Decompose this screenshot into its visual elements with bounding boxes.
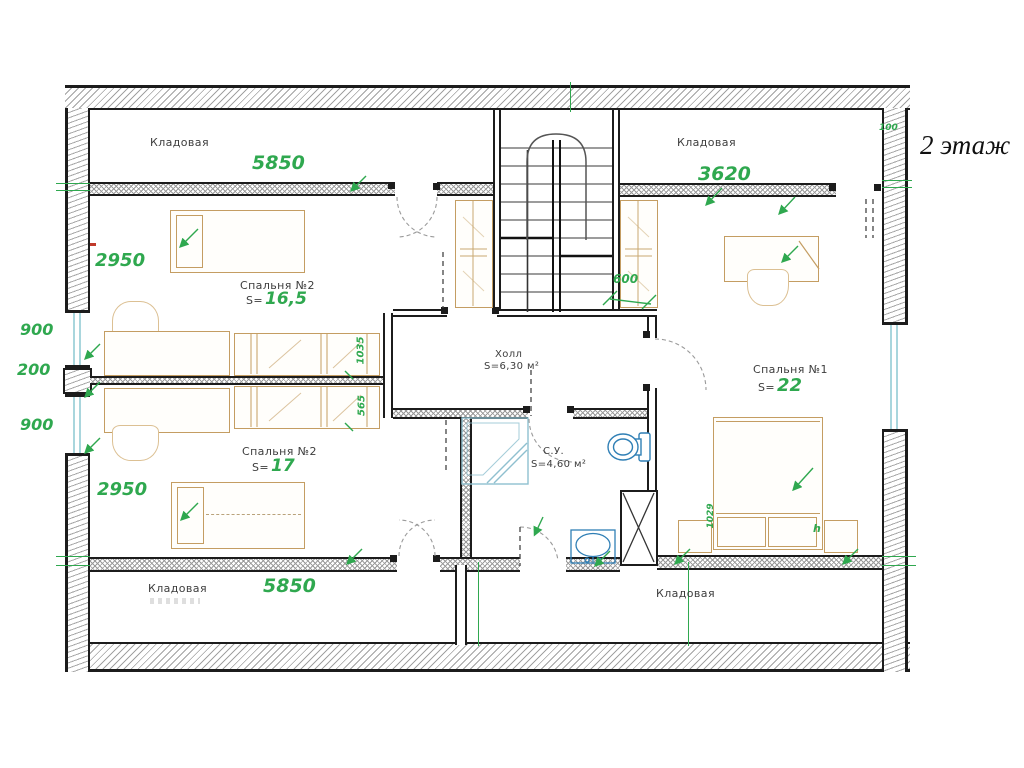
dim-565: 565: [357, 386, 368, 426]
room-label-bathroom: С.У.: [543, 446, 564, 457]
axis-mark-green: [56, 556, 90, 566]
chair: [747, 269, 789, 306]
hall-wall-right-b: [647, 388, 657, 418]
centerline-tick: [570, 82, 571, 112]
wardrobe-linework: [621, 201, 656, 306]
wall-bottom-d: [657, 555, 882, 570]
window-right: [882, 322, 908, 432]
wardrobe-stair-right: [620, 200, 658, 308]
room-area-bedroom2-bottom: S= 17: [252, 456, 295, 476]
door-jamb: [492, 307, 499, 314]
staircase: [501, 110, 612, 312]
dim-5850-top: 5850: [252, 152, 305, 174]
wall-desk-partition: [90, 376, 383, 385]
door-jamb: [441, 307, 448, 314]
wall-storage-divider: [455, 565, 467, 645]
wall-storage-top-right: [620, 183, 836, 197]
dim-h: h: [813, 522, 821, 535]
room-label-hall: Холл: [495, 349, 522, 360]
dim-2950-upper: 2950: [95, 250, 145, 271]
dim-100: 100: [879, 123, 898, 133]
room-label-storage-top-right: Кладовая: [677, 136, 736, 149]
window-left-lower: [65, 394, 90, 456]
dim-900-upper: 900: [20, 320, 53, 339]
door-jamb: [643, 384, 650, 391]
wardrobe-stair-left: [455, 200, 493, 308]
hall-wall-left: [383, 313, 393, 418]
window-left-upper: [65, 310, 90, 368]
axis-mark-red: [90, 243, 96, 246]
area-value: 22: [777, 375, 802, 396]
door-jamb: [829, 184, 836, 191]
desk-upper: [104, 331, 230, 376]
door-jamb: [433, 183, 440, 190]
room-label-storage-bottom-right: Кладовая: [656, 587, 715, 600]
area-prefix: S=: [252, 461, 269, 474]
axis-mark-green: [882, 180, 912, 188]
vent-shaft: [620, 490, 658, 566]
outer-wall-top: [65, 85, 910, 110]
stair-handrail: [527, 134, 586, 240]
dim-900-lower: 900: [20, 415, 53, 434]
door-jamb: [523, 406, 530, 413]
bed-footline: [716, 513, 820, 514]
door-jamb: [643, 331, 650, 338]
toilet: [605, 430, 653, 464]
bed-centerline: [206, 514, 301, 515]
dim-5850-bottom: 5850: [263, 575, 316, 597]
dim-200: 200: [17, 360, 50, 379]
axis-mark-green: [56, 183, 90, 191]
dim-3620: 3620: [698, 163, 751, 185]
dim-600: 600: [613, 272, 638, 286]
door-jamb: [567, 406, 574, 413]
hall-wall-bottom-b: [573, 408, 657, 419]
floor-plan: Кладовая Кладовая Спальня №2 S= 16,5 Спа…: [0, 0, 1024, 768]
wall-storage-top-left: [90, 182, 395, 196]
area-prefix: S=: [246, 294, 263, 307]
hall-wall-top-a: [393, 309, 447, 317]
wall-storage-top-left2: [437, 182, 495, 196]
room-label-storage-top-left: Кладовая: [150, 136, 209, 149]
sink: [570, 529, 616, 565]
area-prefix: S=: [758, 381, 775, 394]
vent-shaft-x-icon: [622, 492, 655, 563]
nightstand-right: [824, 520, 858, 553]
erased-label-remnant: [150, 598, 200, 604]
wall-pier-left: [63, 368, 92, 394]
wall-bottom-b: [440, 557, 520, 572]
shower-cabin: [461, 417, 529, 485]
bed-pillow: [717, 517, 766, 547]
outer-wall-right-upper: [882, 108, 908, 322]
stairwell-wall-left: [493, 110, 501, 312]
chair: [112, 425, 159, 461]
bed-pillow: [176, 215, 203, 268]
room-area-bathroom: S=4,60 м²: [531, 459, 586, 470]
room-area-bedroom2-top: S= 16,5: [246, 289, 307, 309]
area-value: 16,5: [265, 289, 307, 309]
outer-wall-right-lower: [882, 432, 908, 672]
door-jamb: [390, 555, 397, 562]
dim-2950-lower: 2950: [97, 479, 147, 500]
wardrobe-linework: [456, 201, 491, 306]
room-label-storage-bottom-left: Кладовая: [148, 582, 207, 595]
dim-1029: 1029: [706, 496, 716, 536]
centerline-tick: [688, 562, 689, 646]
wall-bottom-a: [90, 557, 397, 572]
room-area-bedroom1: S= 22: [758, 375, 802, 396]
page-title: 2 этаж: [920, 130, 1010, 161]
bed-pillow: [768, 517, 817, 547]
room-area-hall: S=6,30 м²: [484, 361, 539, 372]
bed-pillow: [177, 487, 204, 544]
dim-1035: 1035: [356, 331, 367, 371]
door-jamb: [388, 182, 395, 189]
door-jamb: [433, 555, 440, 562]
bed-headline: [716, 421, 820, 422]
door-jamb: [874, 184, 881, 191]
outer-wall-bottom: [65, 642, 910, 672]
centerline-tick: [478, 562, 479, 646]
axis-mark-green: [882, 556, 916, 566]
outer-wall-left-upper: [65, 108, 90, 310]
area-value: 17: [271, 456, 295, 476]
